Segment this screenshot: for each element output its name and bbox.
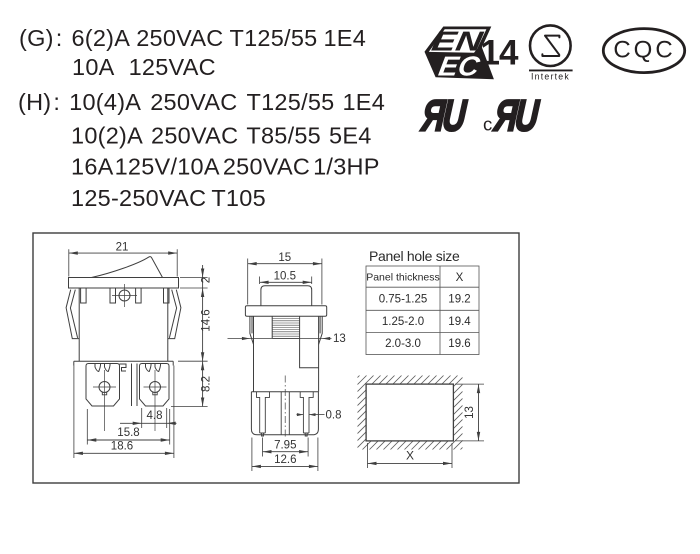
svg-text:21: 21	[116, 242, 129, 254]
svg-text:13: 13	[464, 406, 476, 419]
svg-text:18.6: 18.6	[111, 441, 133, 453]
svg-text:EC: EC	[436, 50, 482, 81]
svg-text:8.2: 8.2	[201, 376, 213, 392]
svg-text:UR: UR	[490, 92, 544, 141]
svg-text:X: X	[456, 272, 464, 284]
svg-text:0.8: 0.8	[326, 409, 342, 421]
svg-text:19.2: 19.2	[448, 294, 470, 306]
svg-text:10.5: 10.5	[274, 271, 296, 283]
svg-text:10A125VAC: 10A125VAC	[72, 54, 216, 80]
svg-text:Intertek: Intertek	[531, 71, 570, 81]
svg-text:X: X	[406, 449, 414, 463]
svg-text:CQC: CQC	[613, 37, 675, 64]
svg-text:2.0-3.0: 2.0-3.0	[385, 338, 421, 350]
svg-text:14: 14	[481, 34, 519, 73]
svg-text:(H):10(4)A250VACT125/551E4: (H):10(4)A250VACT125/551E4	[18, 89, 385, 115]
svg-text:15: 15	[278, 252, 291, 264]
svg-text:Panel thickness: Panel thickness	[366, 272, 440, 284]
svg-text:(G):6(2)A250VACT125/551E4: (G):6(2)A250VACT125/551E4	[19, 25, 366, 51]
svg-text:Panel hole size: Panel hole size	[369, 248, 460, 264]
svg-text:10(2)A250VACT85/555E4: 10(2)A250VACT85/555E4	[71, 123, 372, 149]
svg-text:4.8: 4.8	[147, 410, 163, 422]
svg-text:15.8: 15.8	[117, 427, 139, 439]
svg-text:13: 13	[333, 333, 346, 345]
svg-text:1.25-2.0: 1.25-2.0	[382, 316, 424, 328]
svg-text:12.6: 12.6	[274, 454, 296, 466]
svg-text:2: 2	[201, 277, 213, 283]
svg-text:UR: UR	[417, 92, 471, 141]
svg-text:c: c	[483, 114, 492, 135]
svg-text:14.6: 14.6	[201, 309, 213, 331]
svg-text:16A125V/10A250VAC1/3HP: 16A125V/10A250VAC1/3HP	[71, 154, 380, 180]
svg-text:7.95: 7.95	[274, 439, 296, 451]
svg-text:0.75-1.25: 0.75-1.25	[379, 294, 428, 306]
svg-text:19.4: 19.4	[448, 316, 471, 328]
svg-text:125-250VACT105: 125-250VACT105	[71, 185, 266, 211]
svg-text:19.6: 19.6	[448, 338, 470, 350]
